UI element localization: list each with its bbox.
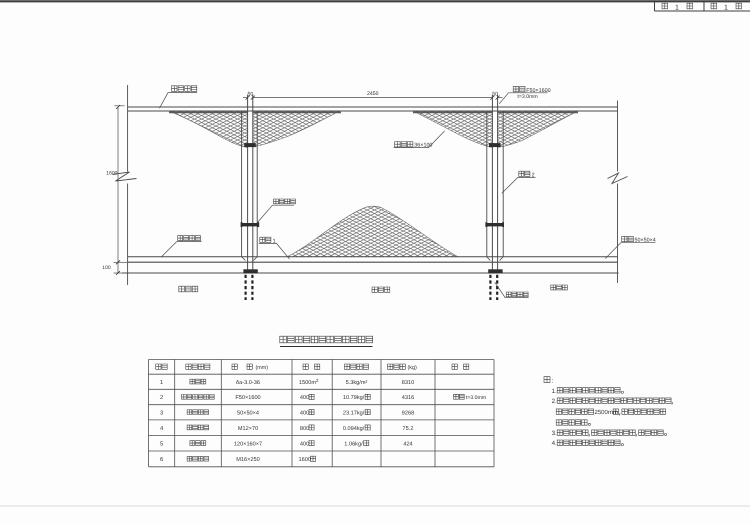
svg-text:6: 6 [160, 456, 163, 463]
svg-text:8310: 8310 [402, 380, 414, 386]
svg-text:100: 100 [102, 265, 111, 271]
svg-text:5.3kg/m²: 5.3kg/m² [346, 379, 368, 386]
svg-text:50×50×4: 50×50×4 [237, 410, 259, 416]
svg-text:t=3.0mm: t=3.0mm [517, 94, 537, 100]
svg-text:5: 5 [160, 441, 163, 447]
svg-text:1.06kg/: 1.06kg/ [344, 440, 363, 447]
svg-text:10.79kg/: 10.79kg/ [343, 394, 365, 401]
svg-text:1: 1 [675, 4, 679, 11]
svg-text:0.094kg/: 0.094kg/ [343, 425, 365, 432]
svg-text:1600: 1600 [106, 171, 117, 177]
svg-text:4.: 4. [552, 440, 557, 447]
svg-text:M12×70: M12×70 [238, 426, 258, 432]
svg-text:400: 400 [300, 441, 309, 447]
svg-text:F50×1600: F50×1600 [235, 395, 260, 401]
svg-text:4: 4 [160, 426, 164, 432]
svg-text:1.: 1. [552, 388, 557, 395]
svg-text:δa-3.0-36: δa-3.0-36 [236, 379, 260, 386]
svg-text:50: 50 [492, 92, 498, 98]
svg-text:75.2: 75.2 [403, 426, 414, 432]
svg-text:120×160×7: 120×160×7 [234, 441, 262, 447]
svg-text:4316: 4316 [402, 395, 414, 401]
svg-text::: : [552, 377, 554, 384]
svg-text:M16×250: M16×250 [236, 457, 259, 463]
svg-text:(kg): (kg) [408, 365, 417, 371]
svg-text:t=3.0mm: t=3.0mm [466, 395, 486, 401]
svg-text:2.: 2. [552, 398, 557, 405]
svg-text:1: 1 [160, 380, 163, 386]
svg-text:1: 1 [724, 4, 728, 11]
svg-text:2500mm: 2500mm [595, 409, 618, 416]
svg-text:(mm): (mm) [256, 365, 269, 371]
svg-text:3.: 3. [552, 430, 557, 437]
svg-text:3: 3 [160, 409, 163, 416]
svg-text:2: 2 [160, 394, 163, 401]
svg-text:424: 424 [403, 441, 412, 447]
svg-text:23.17kg/: 23.17kg/ [343, 409, 365, 416]
svg-text:2450: 2450 [367, 91, 379, 97]
svg-text:9268: 9268 [402, 410, 414, 416]
svg-text:50: 50 [248, 91, 254, 97]
svg-text:1600: 1600 [299, 457, 311, 463]
svg-text:400: 400 [300, 410, 309, 416]
svg-text:800: 800 [300, 426, 309, 432]
svg-text:400: 400 [300, 395, 309, 401]
svg-text:1500m2: 1500m2 [299, 378, 319, 386]
